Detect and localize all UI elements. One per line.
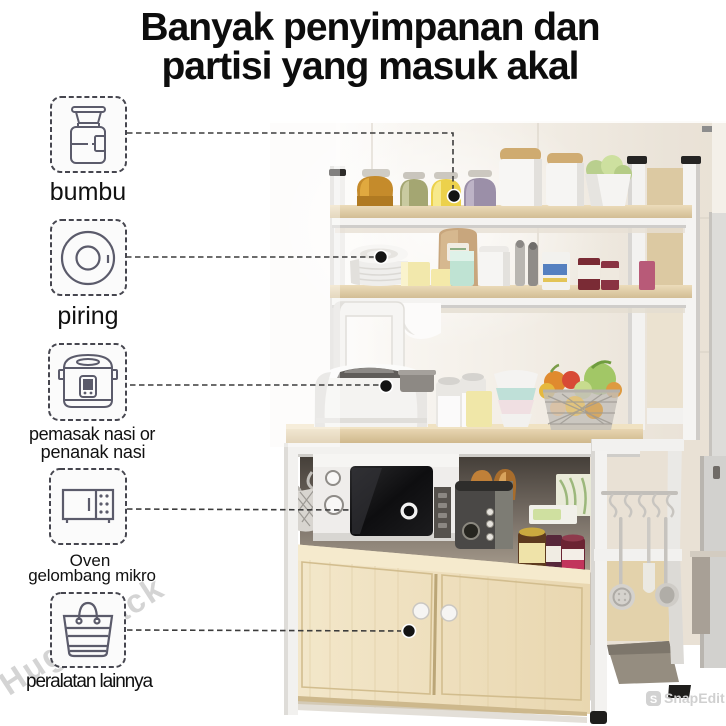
svg-text:S: S [650,694,657,706]
svg-text:SnapEdit: SnapEdit [664,690,725,706]
